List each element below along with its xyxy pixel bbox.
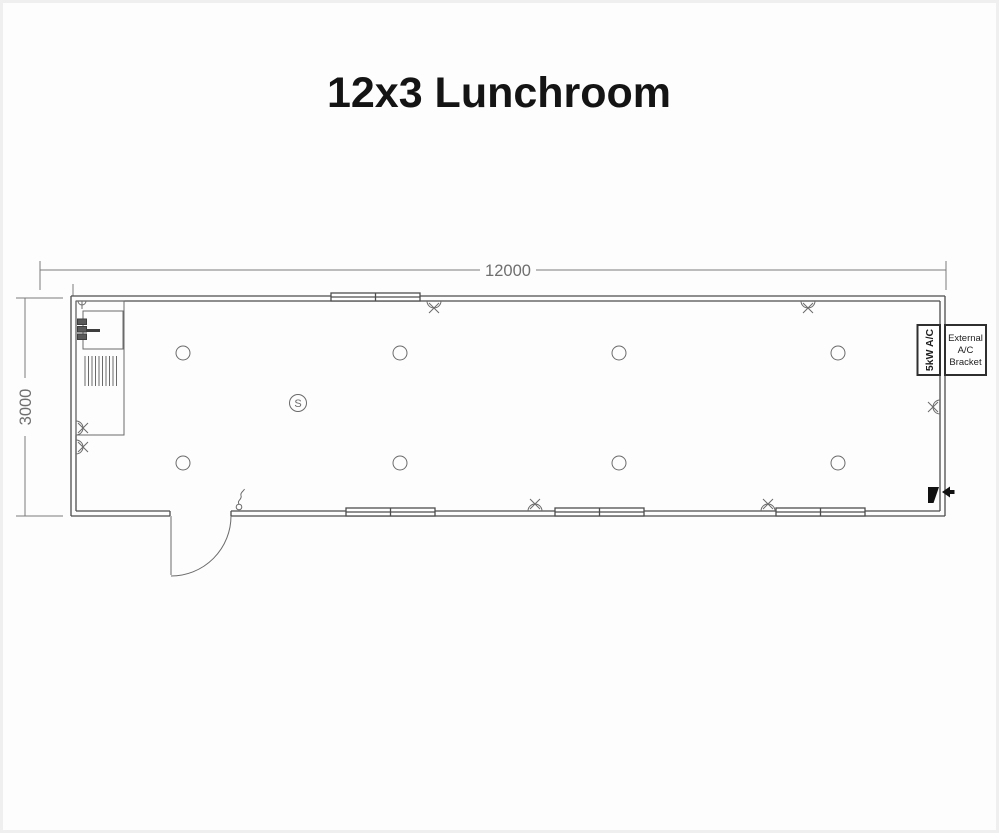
- door-swing-arc: [171, 516, 231, 576]
- power-point-icon: [801, 301, 815, 313]
- downlight-icon: [831, 346, 845, 360]
- window-bottom-1: [346, 508, 435, 516]
- window-bottom-3: [776, 508, 865, 516]
- downlight-icon: [393, 456, 407, 470]
- power-inlet-icon: [928, 487, 955, 504]
- downlights: [176, 346, 845, 470]
- page-title: 12x3 Lunchroom: [327, 69, 671, 117]
- power-point-icon: [528, 499, 542, 511]
- power-point-icon: [761, 499, 775, 511]
- downlight-icon: [612, 456, 626, 470]
- power-point-icon: [427, 301, 441, 313]
- ac-unit-label: 5kW A/C: [924, 328, 936, 371]
- single-power-point-icon: [78, 301, 86, 309]
- dimension-height-label: 3000: [17, 389, 35, 426]
- room-walls: [71, 296, 945, 516]
- dimension-width-label: 12000: [485, 262, 531, 280]
- power-point-icon: [76, 421, 88, 435]
- downlight-icon: [176, 456, 190, 470]
- ac-bracket-line3: Bracket: [949, 357, 982, 368]
- power-point-icon: [76, 440, 88, 454]
- light-switch-icon: [236, 489, 244, 510]
- entry-door: [171, 516, 231, 576]
- smoke-detector-label: S: [294, 398, 301, 410]
- windows: [331, 293, 865, 516]
- ac-bracket-line1: External: [948, 333, 983, 344]
- downlight-icon: [612, 346, 626, 360]
- floor-plan-drawing: 12x3 Lunchroom 12000 3000: [3, 3, 999, 833]
- window-top: [331, 293, 420, 301]
- power-points: [76, 301, 940, 511]
- sink-drainer-hatch: [85, 356, 117, 386]
- downlight-icon: [393, 346, 407, 360]
- downlight-icon: [831, 456, 845, 470]
- window-bottom-2: [555, 508, 644, 516]
- ac-bracket-line2: A/C: [958, 345, 974, 356]
- ac-unit: 5kW A/C: [918, 325, 941, 375]
- floor-plan-page: 12x3 Lunchroom 12000 3000: [0, 0, 999, 833]
- power-point-icon: [928, 400, 940, 414]
- tap-icon: [78, 319, 101, 340]
- ac-bracket: External A/C Bracket: [945, 325, 986, 375]
- smoke-detector-icon: S: [290, 395, 307, 412]
- kitchen-bench: [76, 301, 124, 435]
- downlight-icon: [176, 346, 190, 360]
